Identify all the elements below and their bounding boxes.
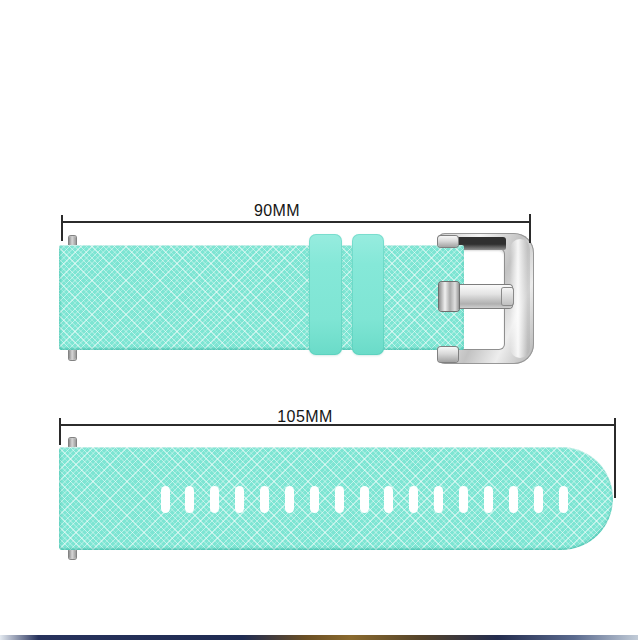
keeper-loop <box>352 234 384 355</box>
dimension-90mm-line <box>62 221 530 223</box>
strap-hole <box>484 486 493 513</box>
dimension-105mm-tick-right <box>614 418 616 498</box>
dimension-105mm-tick-left <box>59 418 61 445</box>
buckle-hinge-tab <box>438 347 458 362</box>
dimension-90mm-tick-left <box>61 215 63 241</box>
dimension-105mm-label: 105MM <box>60 408 550 426</box>
strap-hole <box>161 486 170 513</box>
dimension-90mm-tick-right <box>529 214 531 243</box>
strap-hole <box>285 486 294 513</box>
spring-bar-pin <box>69 549 76 559</box>
buckle-strap-band <box>59 245 464 350</box>
strap-hole <box>360 486 369 513</box>
strap-hole <box>459 486 468 513</box>
dimension-105mm-line <box>60 424 616 426</box>
strap-hole <box>235 486 244 513</box>
strap-hole <box>409 486 418 513</box>
buckle-hinge-tab <box>438 236 458 247</box>
strap-hole <box>310 486 319 513</box>
strap-hole <box>559 486 568 513</box>
buckle-tongue-tip <box>502 288 513 305</box>
strap-hole <box>434 486 443 513</box>
strap-hole <box>534 486 543 513</box>
buckle-tongue-wrap <box>439 282 459 311</box>
keeper-loop <box>309 234 342 355</box>
strap-hole <box>185 486 194 513</box>
strap-hole <box>509 486 518 513</box>
strap-hole <box>260 486 269 513</box>
buckle-frame-highlight <box>510 239 530 358</box>
adjacent-image-edge <box>0 635 638 640</box>
spring-bar-pin <box>69 349 76 360</box>
strap-hole <box>210 486 219 513</box>
dimension-90mm-label: 90MM <box>62 202 492 220</box>
product-size-diagram: 90MM 105MM <box>0 0 638 640</box>
strap-hole <box>384 486 393 513</box>
strap-hole <box>335 486 344 513</box>
